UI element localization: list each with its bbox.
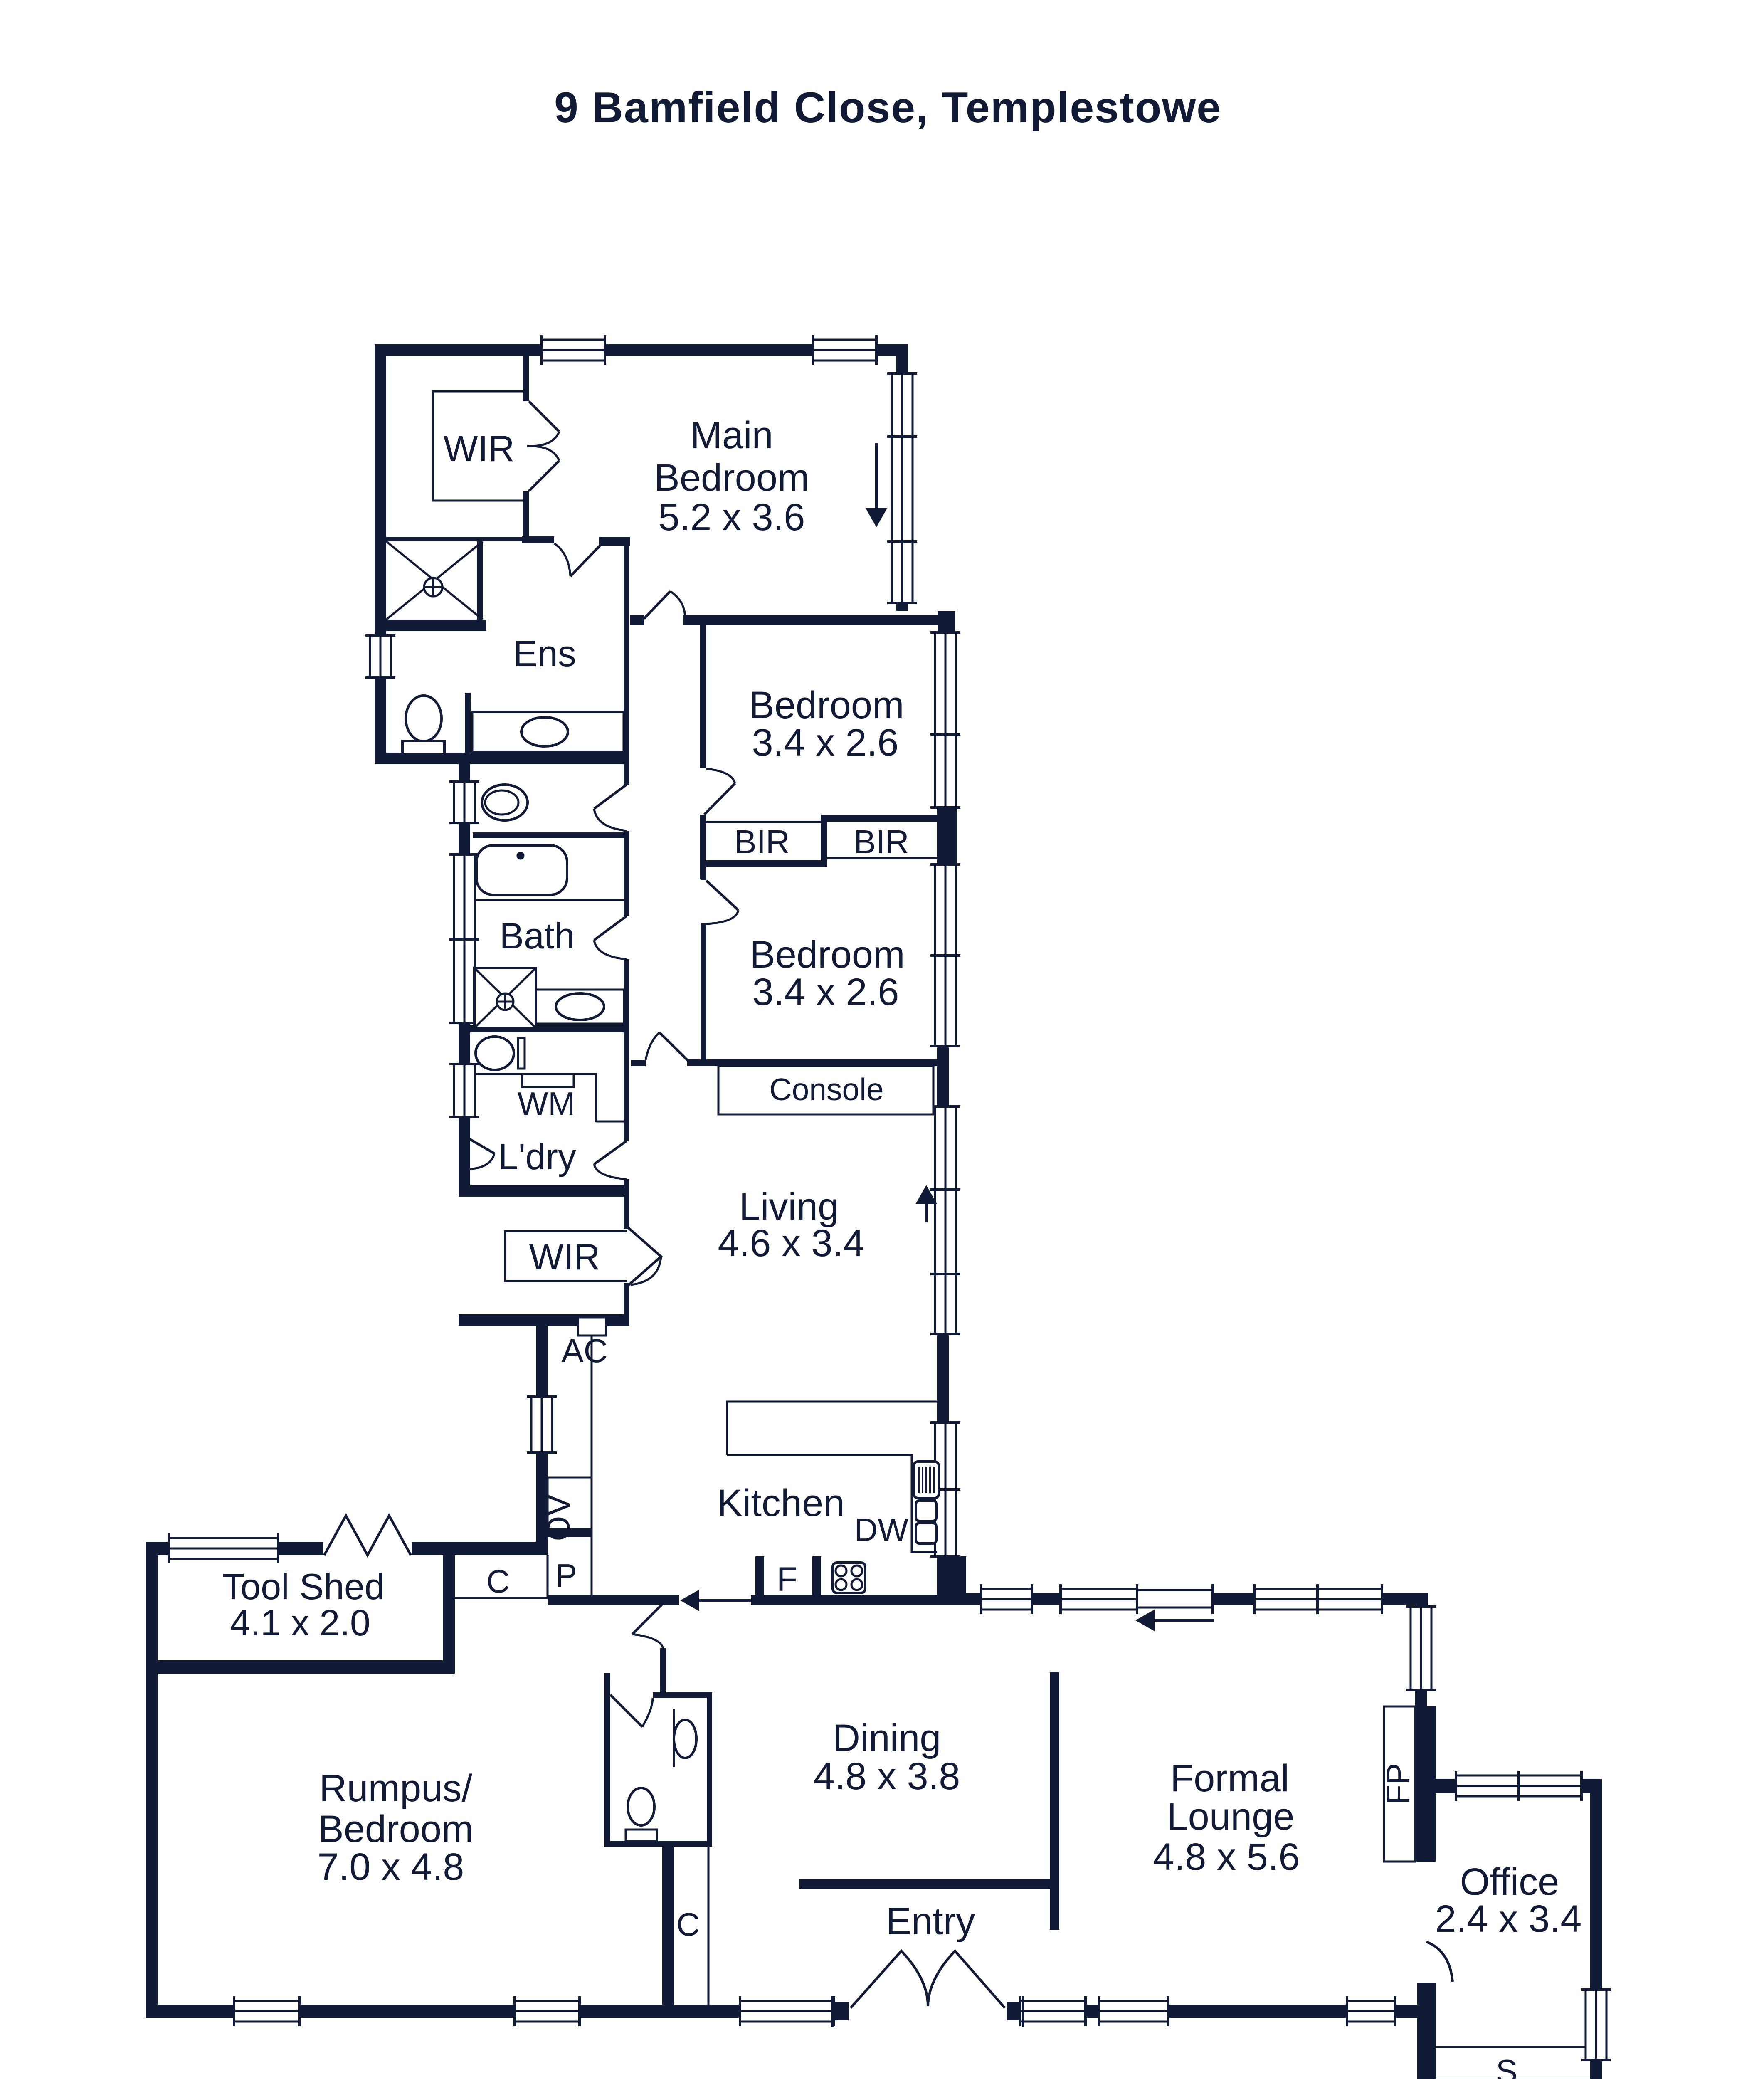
svg-text:WM: WM <box>518 1085 575 1122</box>
svg-text:C: C <box>486 1563 510 1600</box>
svg-text:S: S <box>1496 2053 1517 2079</box>
svg-text:BIR: BIR <box>854 823 909 860</box>
svg-text:WIR: WIR <box>443 428 514 469</box>
svg-text:Main: Main <box>690 414 773 457</box>
svg-text:OV: OV <box>540 1494 577 1541</box>
svg-text:Dining: Dining <box>833 1717 941 1759</box>
svg-text:Lounge: Lounge <box>1167 1795 1295 1838</box>
svg-text:5.2 x 3.6: 5.2 x 3.6 <box>659 496 805 538</box>
svg-text:Ens: Ens <box>513 633 576 674</box>
svg-text:2.4 x 3.4: 2.4 x 3.4 <box>1435 1898 1582 1940</box>
svg-text:DW: DW <box>854 1511 908 1548</box>
svg-text:P: P <box>555 1557 577 1594</box>
svg-text:FP: FP <box>1380 1763 1416 1805</box>
svg-text:Rumpus/: Rumpus/ <box>319 1767 473 1810</box>
svg-text:Bedroom: Bedroom <box>318 1808 473 1850</box>
svg-text:Bedroom: Bedroom <box>654 457 809 499</box>
svg-text:WIR: WIR <box>529 1236 600 1277</box>
svg-text:Formal: Formal <box>1170 1757 1289 1800</box>
svg-text:Office: Office <box>1460 1861 1559 1903</box>
svg-text:7.0 x 4.8: 7.0 x 4.8 <box>318 1846 464 1888</box>
svg-text:4.6 x 3.4: 4.6 x 3.4 <box>718 1222 865 1264</box>
svg-text:4.1 x 2.0: 4.1 x 2.0 <box>230 1602 370 1643</box>
svg-text:Kitchen: Kitchen <box>717 1482 845 1524</box>
svg-text:BIR: BIR <box>734 823 789 860</box>
svg-text:Bedroom: Bedroom <box>749 684 904 726</box>
svg-text:Entry: Entry <box>886 1900 975 1943</box>
svg-text:3.4 x 2.6: 3.4 x 2.6 <box>752 971 899 1013</box>
svg-text:4.8 x 5.6: 4.8 x 5.6 <box>1153 1836 1300 1878</box>
svg-text:3.4 x 2.6: 3.4 x 2.6 <box>752 721 899 764</box>
svg-text:Console: Console <box>769 1072 883 1107</box>
svg-text:Tool Shed: Tool Shed <box>222 1566 385 1607</box>
svg-text:4.8 x 3.8: 4.8 x 3.8 <box>814 1755 960 1798</box>
svg-text:Bedroom: Bedroom <box>750 933 905 976</box>
svg-text:Bath: Bath <box>499 915 575 956</box>
svg-text:AC: AC <box>561 1332 607 1369</box>
svg-text:C: C <box>676 1906 700 1943</box>
svg-text:F: F <box>777 1560 797 1598</box>
svg-text:Living: Living <box>739 1185 839 1228</box>
svg-text:L'dry: L'dry <box>498 1136 576 1177</box>
